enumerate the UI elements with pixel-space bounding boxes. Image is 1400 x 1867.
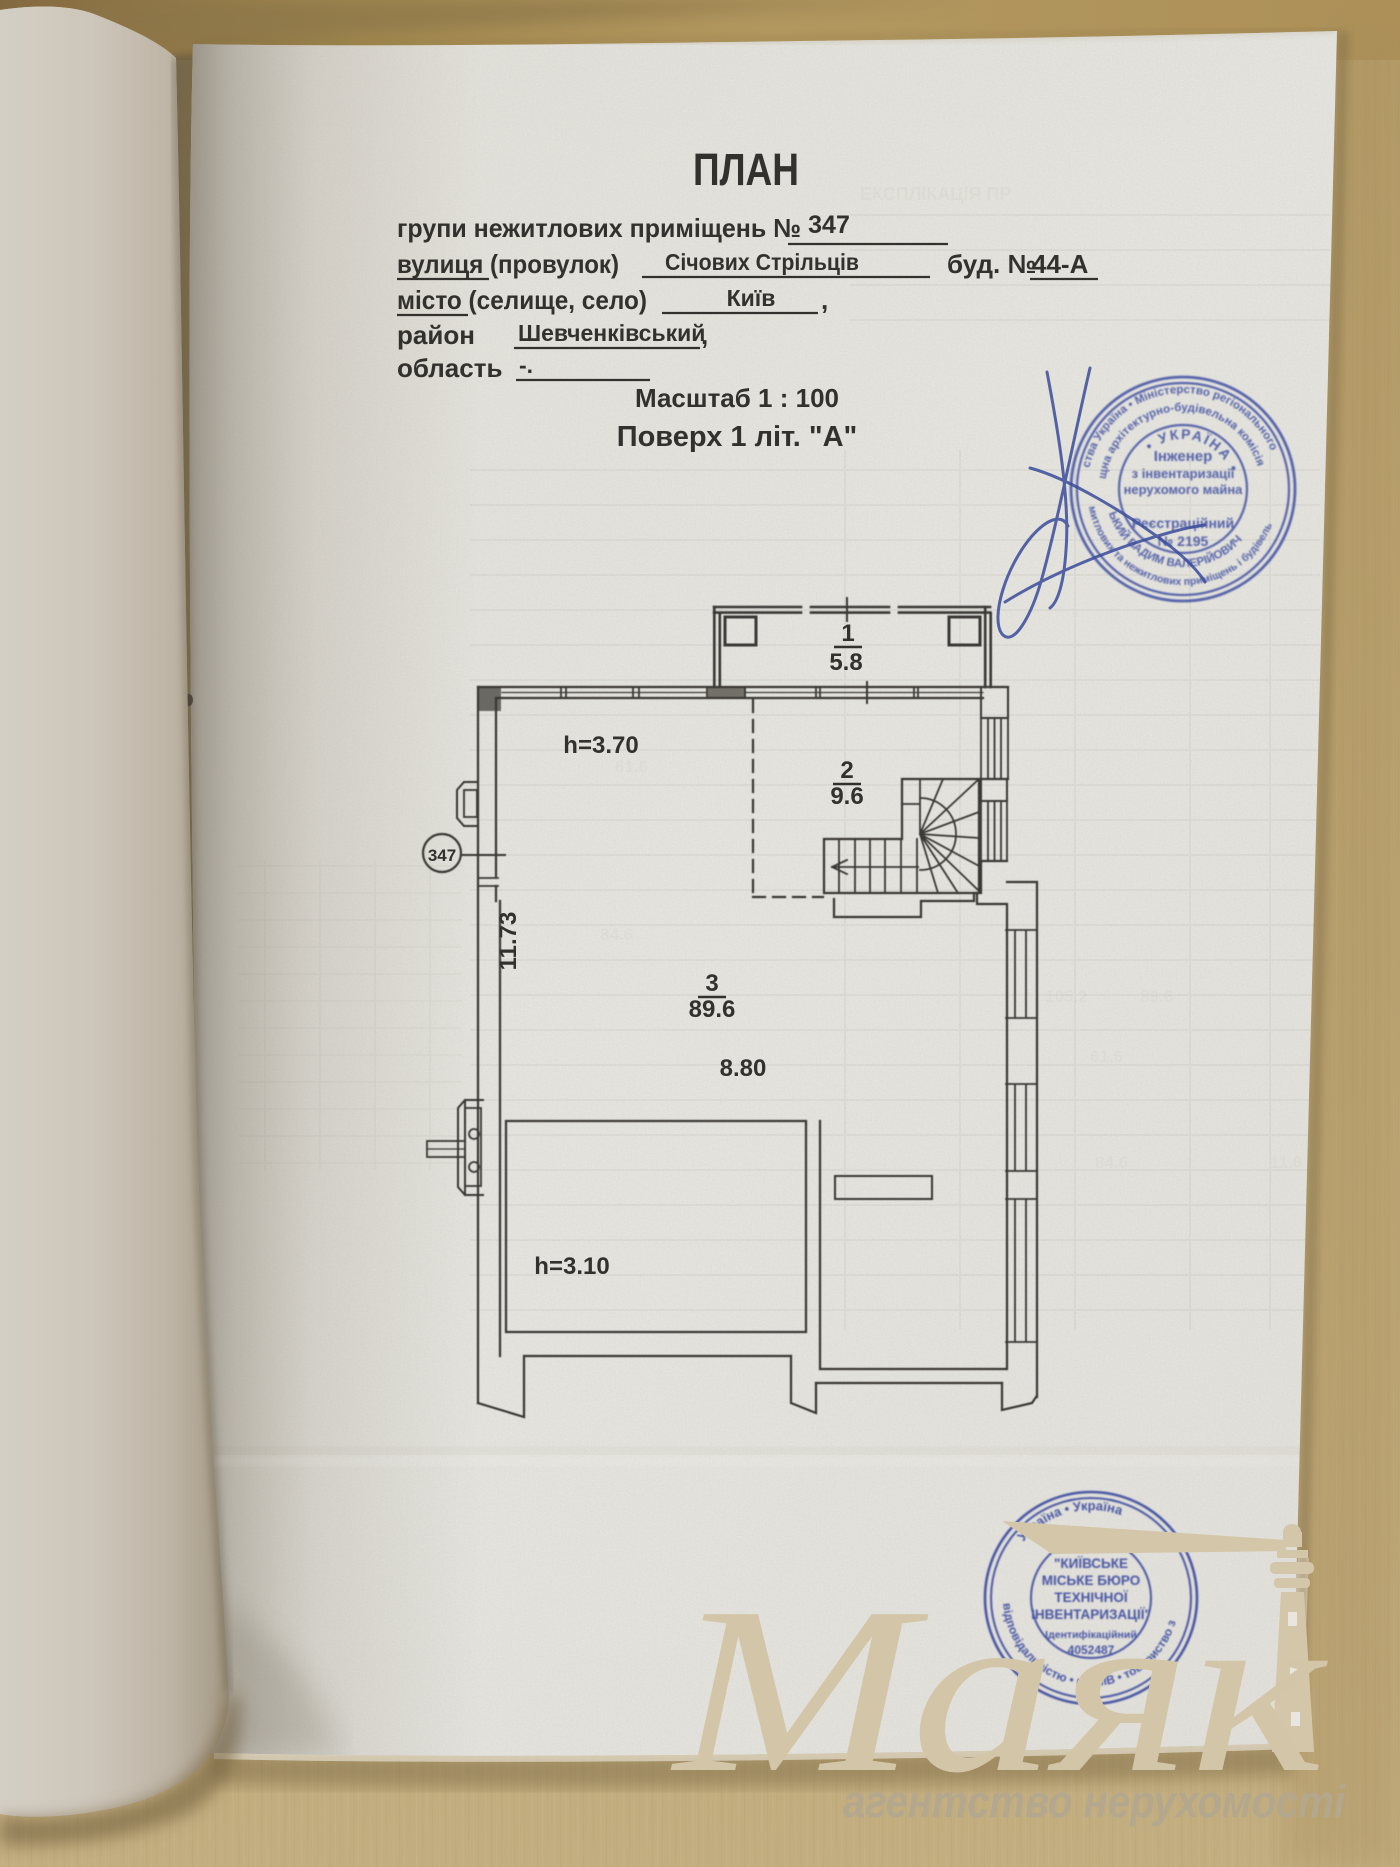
svg-text:Київ: Київ [727, 285, 776, 311]
svg-text:8.80: 8.80 [720, 1055, 767, 1082]
svg-text:Інженер: Інженер [1154, 448, 1213, 465]
svg-text:347: 347 [428, 846, 456, 865]
svg-text:ПЛАН: ПЛАН [693, 144, 799, 195]
svg-text:Січових Стрільців: Січових Стрільців [665, 249, 859, 275]
svg-text:буд. №: буд. № [947, 249, 1036, 279]
svg-text:5.8: 5.8 [829, 649, 862, 676]
svg-text:Поверх 1 літ. "А": Поверх 1 літ. "А" [617, 421, 858, 453]
svg-text:-.: -. [519, 352, 533, 378]
svg-text:61.6: 61.6 [615, 757, 648, 776]
svg-text:84.6: 84.6 [600, 925, 633, 944]
svg-text:,: , [701, 320, 708, 350]
svg-text:групи нежитлових приміщень №: групи нежитлових приміщень № [397, 213, 801, 243]
svg-text:105.2: 105.2 [1045, 987, 1088, 1006]
svg-text:11.6: 11.6 [1270, 1153, 1302, 1172]
svg-text:1: 1 [841, 620, 854, 647]
svg-text:місто (селище, село): місто (селище, село) [397, 285, 647, 315]
svg-text:Масштаб 1 : 100: Масштаб 1 : 100 [635, 383, 839, 413]
svg-text:з інвентаризації: з інвентаризації [1132, 466, 1235, 481]
svg-text:,: , [821, 285, 828, 315]
svg-text:11.73: 11.73 [495, 912, 522, 971]
svg-text:89.6: 89.6 [689, 996, 736, 1023]
svg-text:область: область [397, 353, 502, 383]
svg-text:9.6: 9.6 [830, 783, 863, 810]
svg-text:h=3.10: h=3.10 [534, 1253, 609, 1280]
svg-text:вулиця (провулок): вулиця (провулок) [397, 249, 619, 279]
svg-text:347: 347 [808, 211, 850, 239]
svg-text:нерухомого майна: нерухомого майна [1124, 482, 1244, 497]
svg-text:84.6: 84.6 [1095, 1153, 1128, 1172]
svg-text:район: район [397, 320, 475, 350]
svg-text:3: 3 [705, 970, 718, 997]
svg-text:89.6: 89.6 [1140, 987, 1173, 1006]
svg-text:2: 2 [840, 757, 853, 784]
svg-text:h=3.70: h=3.70 [563, 732, 638, 759]
svg-text:Шевченківський: Шевченківський [518, 320, 705, 346]
svg-text:44-А: 44-А [1032, 249, 1089, 279]
svg-text:ЕКСПЛІКАЦІЯ ПР: ЕКСПЛІКАЦІЯ ПР [860, 184, 1011, 204]
svg-text:агентство нерухомості: агентство нерухомості [843, 1776, 1346, 1827]
svg-text:61.6: 61.6 [1090, 1047, 1123, 1066]
